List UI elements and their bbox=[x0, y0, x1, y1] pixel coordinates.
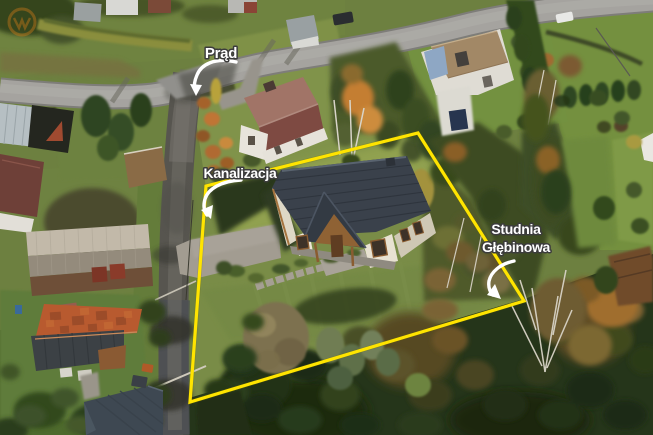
svg-text:Studnia: Studnia bbox=[491, 221, 541, 237]
svg-text:Prąd: Prąd bbox=[205, 45, 237, 62]
svg-text:Głębinowa: Głębinowa bbox=[482, 239, 551, 255]
svg-text:Kanalizacja: Kanalizacja bbox=[204, 165, 277, 181]
